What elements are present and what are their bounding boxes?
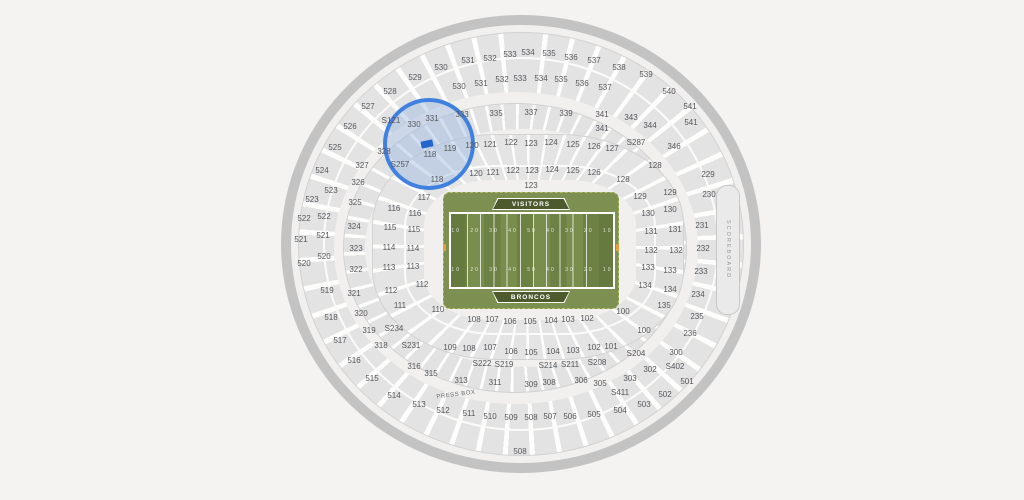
section-534[interactable]: 534 [521, 49, 534, 57]
section-502[interactable]: 502 [658, 391, 671, 399]
section-508[interactable]: 508 [524, 414, 537, 422]
yard-lines [467, 214, 597, 287]
section-326[interactable]: 326 [351, 179, 364, 187]
section-125[interactable]: 125 [566, 167, 579, 175]
section-504[interactable]: 504 [613, 407, 626, 415]
section-533[interactable]: 533 [513, 75, 526, 83]
section-135[interactable]: 135 [657, 302, 670, 310]
section-525[interactable]: 525 [328, 144, 341, 152]
visitors-label: VISITORS [512, 201, 550, 208]
section-524[interactable]: 524 [315, 167, 328, 175]
section-234[interactable]: 234 [691, 291, 704, 299]
section-100[interactable]: 100 [637, 327, 650, 335]
section-531[interactable]: 531 [461, 57, 474, 65]
section-130[interactable]: 130 [663, 206, 676, 214]
section-107[interactable]: 107 [485, 316, 498, 324]
section-305[interactable]: 305 [593, 380, 606, 388]
section-236[interactable]: 236 [683, 330, 696, 338]
section-117[interactable]: 117 [418, 194, 431, 202]
section-S204[interactable]: S204 [627, 350, 646, 358]
goal-marker-right [616, 244, 619, 251]
section-303[interactable]: 303 [623, 375, 636, 383]
section-516[interactable]: 516 [347, 357, 360, 365]
section-133[interactable]: 133 [663, 267, 676, 275]
section-527[interactable]: 527 [361, 103, 374, 111]
section-111[interactable]: 111 [394, 302, 406, 310]
section-319[interactable]: 319 [362, 327, 375, 335]
section-523[interactable]: 523 [305, 196, 318, 204]
section-129[interactable]: 129 [633, 193, 646, 201]
section-517[interactable]: 517 [333, 337, 346, 345]
section-104[interactable]: 104 [544, 317, 557, 325]
endzone-right [599, 214, 613, 287]
section-541[interactable]: 541 [684, 119, 697, 127]
section-520[interactable]: 520 [297, 260, 310, 268]
section-535[interactable]: 535 [542, 50, 555, 58]
section-131[interactable]: 131 [644, 228, 657, 236]
section-509[interactable]: 509 [504, 414, 517, 422]
section-308[interactable]: 308 [542, 379, 555, 387]
section-511[interactable]: 511 [463, 410, 476, 418]
section-313[interactable]: 313 [454, 377, 467, 385]
section-128[interactable]: 128 [648, 162, 661, 170]
section-109[interactable]: 109 [443, 344, 456, 352]
section-538[interactable]: 538 [612, 64, 625, 72]
section-316[interactable]: 316 [407, 363, 420, 371]
section-105[interactable]: 105 [523, 318, 536, 326]
section-520[interactable]: 520 [317, 253, 330, 261]
section-533[interactable]: 533 [503, 51, 516, 59]
section-114[interactable]: 114 [407, 245, 420, 253]
section-S411[interactable]: S411 [611, 389, 629, 397]
section-315[interactable]: 315 [424, 370, 437, 378]
broncos-endzone-banner: BRONCOS [492, 291, 570, 303]
section-503[interactable]: 503 [637, 401, 650, 409]
section-331[interactable]: 331 [425, 115, 438, 123]
section-116[interactable]: 116 [388, 205, 401, 213]
section-S402[interactable]: S402 [666, 363, 685, 371]
section-125[interactable]: 125 [566, 141, 579, 149]
section-123[interactable]: 123 [525, 167, 538, 175]
scoreboard-label: SCOREBOARD [725, 220, 731, 279]
section-344[interactable]: 344 [643, 122, 656, 130]
football-field: 10 20 30 40 50 40 30 20 10 10 20 30 40 5… [449, 212, 615, 289]
section-108[interactable]: 108 [467, 316, 480, 324]
section-126[interactable]: 126 [587, 143, 600, 151]
section-100[interactable]: 100 [616, 308, 629, 316]
section-526[interactable]: 526 [343, 123, 356, 131]
section-103[interactable]: 103 [566, 347, 579, 355]
section-123[interactable]: 123 [524, 182, 537, 190]
section-229[interactable]: 229 [701, 171, 714, 179]
section-521[interactable]: 521 [316, 232, 329, 240]
section-328[interactable]: 328 [377, 148, 390, 156]
section-507[interactable]: 507 [543, 413, 556, 421]
section-232[interactable]: 232 [696, 245, 709, 253]
section-132[interactable]: 132 [669, 247, 682, 255]
section-521[interactable]: 521 [294, 236, 307, 244]
section-309[interactable]: 309 [524, 381, 537, 389]
section-512[interactable]: 512 [436, 407, 449, 415]
section-122[interactable]: 122 [504, 139, 517, 147]
section-106[interactable]: 106 [504, 348, 517, 356]
section-101[interactable]: 101 [604, 343, 617, 351]
section-318[interactable]: 318 [374, 342, 387, 350]
section-230[interactable]: 230 [702, 191, 715, 199]
section-124[interactable]: 124 [544, 139, 557, 147]
section-501[interactable]: 501 [680, 378, 693, 386]
section-325[interactable]: 325 [348, 199, 361, 207]
section-S222[interactable]: S222 [473, 360, 492, 368]
section-S211[interactable]: S211 [561, 361, 579, 369]
section-330[interactable]: 330 [407, 121, 420, 129]
section-513[interactable]: 513 [412, 401, 425, 409]
section-537[interactable]: 537 [587, 57, 600, 65]
section-333[interactable]: 333 [455, 111, 468, 119]
section-534[interactable]: 534 [534, 75, 547, 83]
section-115[interactable]: 115 [408, 226, 421, 234]
section-122[interactable]: 122 [506, 167, 519, 175]
yard-numbers-top: 10 20 30 40 50 40 30 20 10 [451, 228, 613, 234]
section-120[interactable]: 120 [465, 142, 478, 150]
section-306[interactable]: 306 [574, 377, 587, 385]
section-108[interactable]: 108 [462, 345, 475, 353]
section-134[interactable]: 134 [663, 286, 676, 294]
section-130[interactable]: 130 [641, 210, 654, 218]
section-510[interactable]: 510 [483, 413, 496, 421]
broncos-label: BRONCOS [511, 294, 551, 301]
section-327[interactable]: 327 [355, 162, 368, 170]
section-323[interactable]: 323 [349, 245, 362, 253]
section-518[interactable]: 518 [324, 314, 337, 322]
section-322[interactable]: 322 [349, 266, 362, 274]
section-529[interactable]: 529 [408, 74, 421, 82]
section-535[interactable]: 535 [554, 76, 567, 84]
section-300[interactable]: 300 [669, 349, 682, 357]
yard-numbers-bottom: 10 20 30 40 50 40 30 20 10 [451, 267, 613, 273]
section-110[interactable]: 110 [432, 306, 445, 314]
section-S234[interactable]: S234 [385, 325, 404, 333]
section-523[interactable]: 523 [324, 187, 337, 195]
section-S219[interactable]: S219 [495, 361, 514, 369]
section-115[interactable]: 115 [384, 224, 397, 232]
section-S231[interactable]: S231 [402, 342, 421, 350]
section-530[interactable]: 530 [434, 64, 447, 72]
section-514[interactable]: 514 [387, 392, 400, 400]
section-302[interactable]: 302 [643, 366, 656, 374]
section-343[interactable]: 343 [624, 114, 637, 122]
seat-map[interactable]: SCOREBOARD VISITORS BRONCOS 10 20 30 40 … [0, 0, 1024, 500]
section-133[interactable]: 133 [641, 264, 654, 272]
section-508[interactable]: 508 [513, 448, 526, 456]
section-106[interactable]: 106 [503, 318, 516, 326]
section-S121[interactable]: S121 [382, 117, 401, 125]
section-506[interactable]: 506 [563, 413, 576, 421]
section-530[interactable]: 530 [452, 83, 465, 91]
section-346[interactable]: 346 [667, 143, 680, 151]
section-531[interactable]: 531 [474, 80, 487, 88]
section-505[interactable]: 505 [587, 411, 600, 419]
section-519[interactable]: 519 [320, 287, 333, 295]
endzone-left [451, 214, 465, 287]
section-112[interactable]: 112 [416, 281, 429, 289]
section-231[interactable]: 231 [695, 222, 708, 230]
section-S257[interactable]: S257 [391, 161, 410, 169]
section-532[interactable]: 532 [495, 76, 508, 84]
section-120[interactable]: 120 [469, 170, 482, 178]
section-104[interactable]: 104 [546, 348, 559, 356]
section-233[interactable]: 233 [694, 268, 707, 276]
section-235[interactable]: 235 [690, 313, 703, 321]
section-339[interactable]: 339 [559, 110, 572, 118]
section-129[interactable]: 129 [663, 189, 676, 197]
section-311[interactable]: 311 [489, 379, 502, 387]
section-114[interactable]: 114 [383, 244, 396, 252]
visitors-endzone-banner: VISITORS [492, 198, 570, 210]
section-341[interactable]: 341 [595, 111, 608, 119]
section-118[interactable]: 118 [424, 151, 437, 159]
section-324[interactable]: 324 [347, 223, 360, 231]
scoreboard-structure: SCOREBOARD [716, 185, 740, 315]
section-119[interactable]: 119 [444, 145, 457, 153]
section-103[interactable]: 103 [561, 316, 574, 324]
section-102[interactable]: 102 [580, 315, 593, 323]
section-541[interactable]: 541 [683, 103, 696, 111]
section-335[interactable]: 335 [489, 110, 502, 118]
section-113[interactable]: 113 [407, 263, 420, 271]
section-528[interactable]: 528 [383, 88, 396, 96]
section-532[interactable]: 532 [483, 55, 496, 63]
section-515[interactable]: 515 [365, 375, 378, 383]
section-540[interactable]: 540 [662, 88, 675, 96]
section-126[interactable]: 126 [587, 169, 600, 177]
section-107[interactable]: 107 [483, 344, 496, 352]
section-539[interactable]: 539 [639, 71, 652, 79]
section-522[interactable]: 522 [317, 213, 330, 221]
section-321[interactable]: 321 [347, 290, 360, 298]
section-121[interactable]: 121 [483, 141, 496, 149]
section-337[interactable]: 337 [524, 109, 537, 117]
section-102[interactable]: 102 [587, 344, 600, 352]
section-113[interactable]: 113 [383, 264, 396, 272]
section-S208[interactable]: S208 [588, 359, 607, 367]
goal-marker-left [443, 244, 446, 251]
section-536[interactable]: 536 [575, 80, 588, 88]
section-124[interactable]: 124 [545, 166, 558, 174]
section-320[interactable]: 320 [354, 310, 367, 318]
section-522[interactable]: 522 [297, 215, 310, 223]
section-118[interactable]: 118 [431, 176, 444, 184]
section-341[interactable]: 341 [595, 125, 608, 133]
section-105[interactable]: 105 [524, 349, 537, 357]
section-131[interactable]: 131 [668, 226, 681, 234]
section-536[interactable]: 536 [564, 54, 577, 62]
section-537[interactable]: 537 [598, 84, 611, 92]
section-112[interactable]: 112 [385, 287, 398, 295]
section-S214[interactable]: S214 [539, 362, 558, 370]
section-S287[interactable]: S287 [627, 139, 646, 147]
section-116[interactable]: 116 [409, 210, 422, 218]
section-132[interactable]: 132 [644, 247, 657, 255]
section-134[interactable]: 134 [638, 282, 651, 290]
section-127[interactable]: 127 [605, 145, 618, 153]
section-121[interactable]: 121 [486, 169, 499, 177]
section-128[interactable]: 128 [616, 176, 629, 184]
section-123[interactable]: 123 [524, 140, 537, 148]
